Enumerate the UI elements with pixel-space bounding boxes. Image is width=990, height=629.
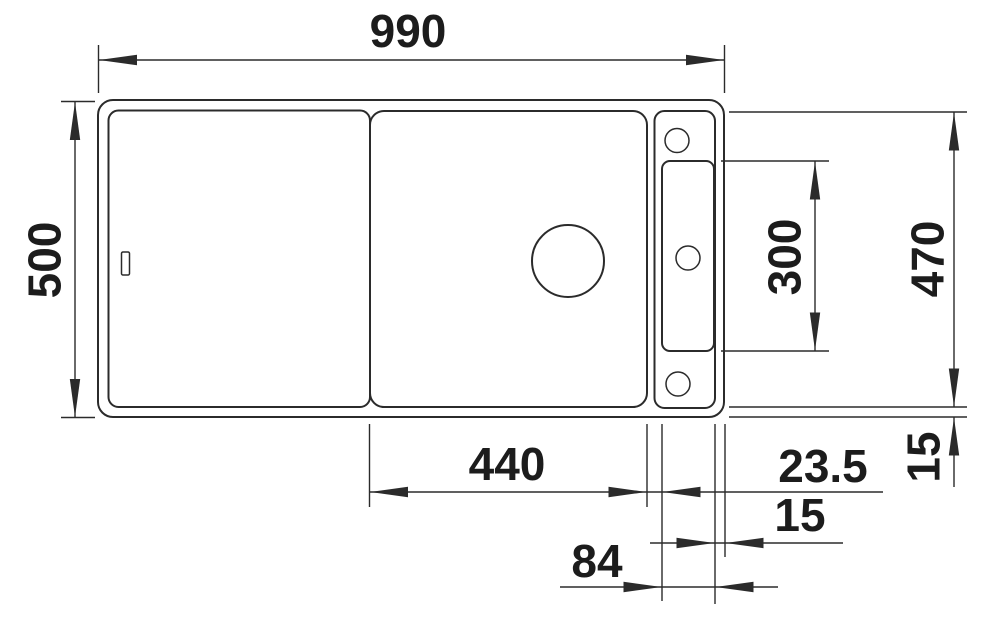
sink-outline-group [98, 100, 724, 417]
drainboard-outline [109, 111, 371, 408]
dim-15-bottom-label: 15 [898, 431, 950, 482]
arrowhead-right [609, 487, 647, 497]
arrowhead-toward-left [726, 538, 764, 548]
dim-overall-width: 990 [99, 5, 725, 93]
arrowhead-top [810, 162, 820, 200]
arrowhead-bottom [810, 313, 820, 351]
arrowhead-gap-right [663, 487, 701, 497]
arrowhead-top [70, 102, 80, 140]
dim-440-label: 440 [469, 438, 546, 490]
arrowhead-left [99, 55, 137, 65]
tap-panel-outline [662, 161, 714, 351]
tap-ledge-outline [655, 111, 716, 408]
dim-23-5-label: 23.5 [778, 440, 868, 492]
arrowhead-right [686, 55, 724, 65]
dim-rim-right: 15 [650, 489, 843, 548]
arrowhead-up [949, 418, 959, 456]
dim-tap-panel-height: 300 [721, 161, 829, 351]
arrowhead-toward-left [716, 582, 754, 592]
arrowhead-bottom [949, 369, 959, 407]
dim-500-label: 500 [19, 222, 71, 299]
arrowhead-left [370, 487, 408, 497]
overflow-slot [122, 252, 130, 275]
arrowhead-toward-right [624, 582, 662, 592]
dim-470-label: 470 [902, 221, 954, 298]
tap-hole-bottom [666, 372, 690, 396]
sink-outer-outline [98, 100, 724, 417]
bowl-outline [370, 111, 647, 407]
arrowhead-top [949, 113, 959, 151]
tap-hole-top [665, 129, 689, 153]
drain-hole [532, 225, 604, 297]
dim-15-right-label: 15 [774, 489, 825, 541]
arrowhead-toward-right [677, 538, 715, 548]
tap-hole-middle [676, 246, 700, 270]
dim-overall-depth: 500 [19, 102, 95, 418]
drawing-canvas: 990 500 470 300 15 [0, 0, 990, 629]
dim-300-label: 300 [759, 219, 811, 296]
sink-technical-drawing: 990 500 470 300 15 [0, 0, 990, 629]
arrowhead-bottom [70, 379, 80, 417]
dim-990-label: 990 [370, 5, 447, 57]
dim-84-label: 84 [571, 535, 623, 587]
